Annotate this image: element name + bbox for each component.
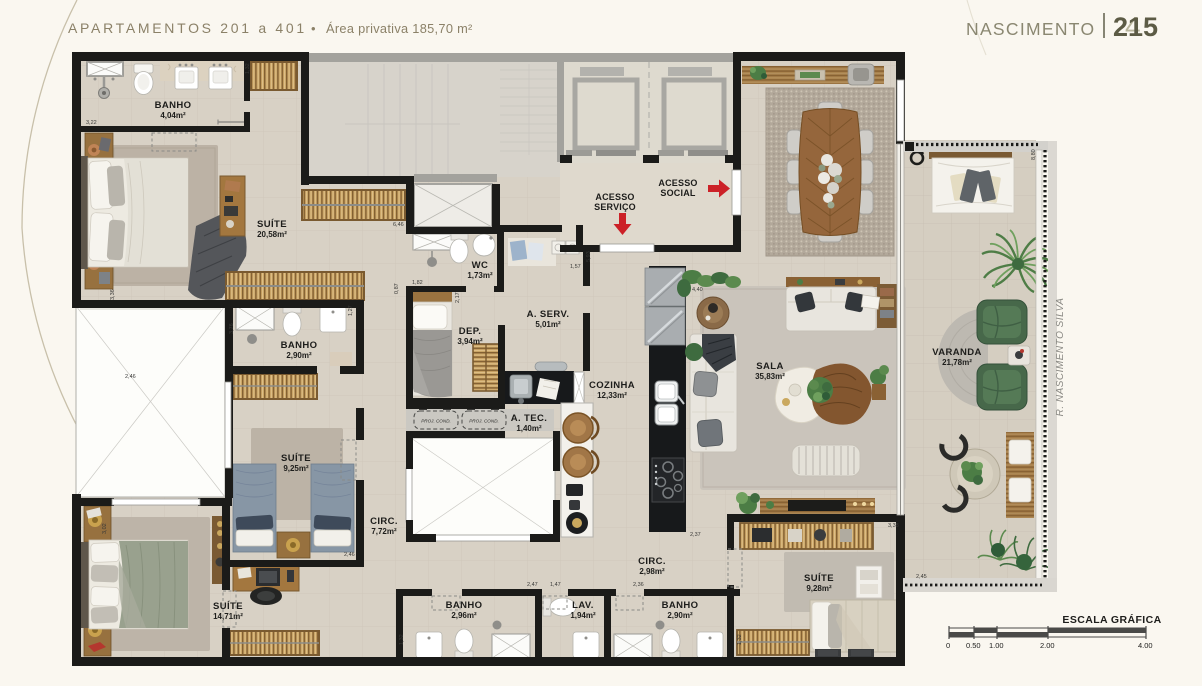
svg-text:4.00: 4.00 [1138,641,1153,650]
svg-text:3,94m²: 3,94m² [457,337,483,346]
svg-text:DEP.: DEP. [459,326,482,337]
svg-text:3,76: 3,76 [229,323,235,334]
svg-text:SUÍTE: SUÍTE [213,601,243,612]
svg-text:CIRC.: CIRC. [638,556,666,567]
svg-text:NASCIMENTO: NASCIMENTO [966,19,1095,39]
svg-text:APARTAMENTOS 201 a 401: APARTAMENTOS 201 a 401 [68,20,307,36]
svg-text:•: • [311,21,316,36]
svg-text:ACESSO: ACESSO [658,178,697,188]
svg-text:1,94m²: 1,94m² [570,611,596,620]
svg-text:21,78m²: 21,78m² [942,358,972,367]
svg-text:5,01m²: 5,01m² [535,320,561,329]
svg-text:0,87: 0,87 [394,283,400,294]
svg-text:2.00: 2.00 [1040,641,1055,650]
svg-text:3,36: 3,36 [110,289,116,300]
svg-text:1,27: 1,27 [348,305,354,316]
svg-text:VARANDA: VARANDA [932,347,982,358]
svg-text:WC: WC [472,260,489,271]
svg-text:2,37: 2,37 [690,532,701,538]
svg-text:35,83m²: 35,83m² [755,372,785,381]
svg-text:1,57: 1,57 [570,264,581,270]
svg-text:2,96m²: 2,96m² [451,611,477,620]
svg-text:COZINHA: COZINHA [589,380,635,391]
svg-text:BANHO: BANHO [446,600,483,611]
svg-text:BANHO: BANHO [155,100,192,111]
svg-text:PROJ. COND.: PROJ. COND. [421,419,451,424]
svg-text:1,40m²: 1,40m² [516,424,542,433]
svg-text:1.00: 1.00 [989,641,1004,650]
svg-text:R. NASCIMENTO SILVA: R. NASCIMENTO SILVA [1055,298,1066,417]
svg-text:2,90m²: 2,90m² [286,351,312,360]
svg-text:2,90m²: 2,90m² [667,611,693,620]
svg-text:3,22: 3,22 [86,120,97,126]
svg-text:14,71m²: 14,71m² [213,612,243,621]
svg-text:2,46: 2,46 [344,552,355,558]
svg-text:1,82: 1,82 [412,280,423,286]
svg-text:SUÍTE: SUÍTE [257,219,287,230]
svg-text:9,28m²: 9,28m² [806,584,832,593]
svg-text:Área privativa 185,70 m²: Área privativa 185,70 m² [326,21,473,36]
svg-text:12,33m²: 12,33m² [597,391,627,400]
svg-text:20,58m²: 20,58m² [257,230,287,239]
svg-text:BANHO: BANHO [281,340,318,351]
svg-text:5,93: 5,93 [586,251,592,262]
svg-text:215: 215 [1113,12,1158,42]
svg-text:3,38: 3,38 [888,523,899,529]
svg-text:PROJ. COND.: PROJ. COND. [469,419,499,424]
svg-text:2,98m²: 2,98m² [639,567,665,576]
svg-text:1,73m²: 1,73m² [467,271,493,280]
svg-text:LAV.: LAV. [572,600,594,611]
svg-text:1,32: 1,32 [399,634,405,645]
svg-text:SERVIÇO: SERVIÇO [594,202,636,212]
svg-text:A. SERV.: A. SERV. [527,309,570,320]
svg-text:2,17: 2,17 [455,292,461,303]
svg-text:2,46: 2,46 [125,374,136,380]
svg-text:8,80: 8,80 [1031,149,1037,160]
svg-text:ACESSO: ACESSO [595,192,634,202]
svg-text:0.50: 0.50 [966,641,981,650]
svg-text:2,47: 2,47 [527,582,538,588]
svg-text:SOCIAL: SOCIAL [660,188,696,198]
svg-text:BANHO: BANHO [662,600,699,611]
svg-text:1,47: 1,47 [550,582,561,588]
svg-text:2,45: 2,45 [916,574,927,580]
svg-text:CIRC.: CIRC. [370,516,398,527]
svg-text:7,72m²: 7,72m² [371,527,397,536]
svg-text:1,32: 1,32 [737,634,743,645]
svg-text:SALA: SALA [756,361,783,372]
svg-text:4,40: 4,40 [692,287,703,293]
svg-text:ESCALA GRÁFICA: ESCALA GRÁFICA [1062,613,1161,626]
svg-text:SUÍTE: SUÍTE [281,453,311,464]
svg-text:1,32: 1,32 [245,63,251,74]
svg-text:4,04m²: 4,04m² [160,111,186,120]
svg-text:9,25m²: 9,25m² [283,464,309,473]
svg-text:A. TEC.: A. TEC. [511,413,548,424]
svg-text:2,36: 2,36 [633,582,644,588]
svg-text:SUÍTE: SUÍTE [804,573,834,584]
svg-text:6,46: 6,46 [393,222,404,228]
svg-text:3,02: 3,02 [102,523,108,534]
svg-text:0: 0 [946,641,950,650]
